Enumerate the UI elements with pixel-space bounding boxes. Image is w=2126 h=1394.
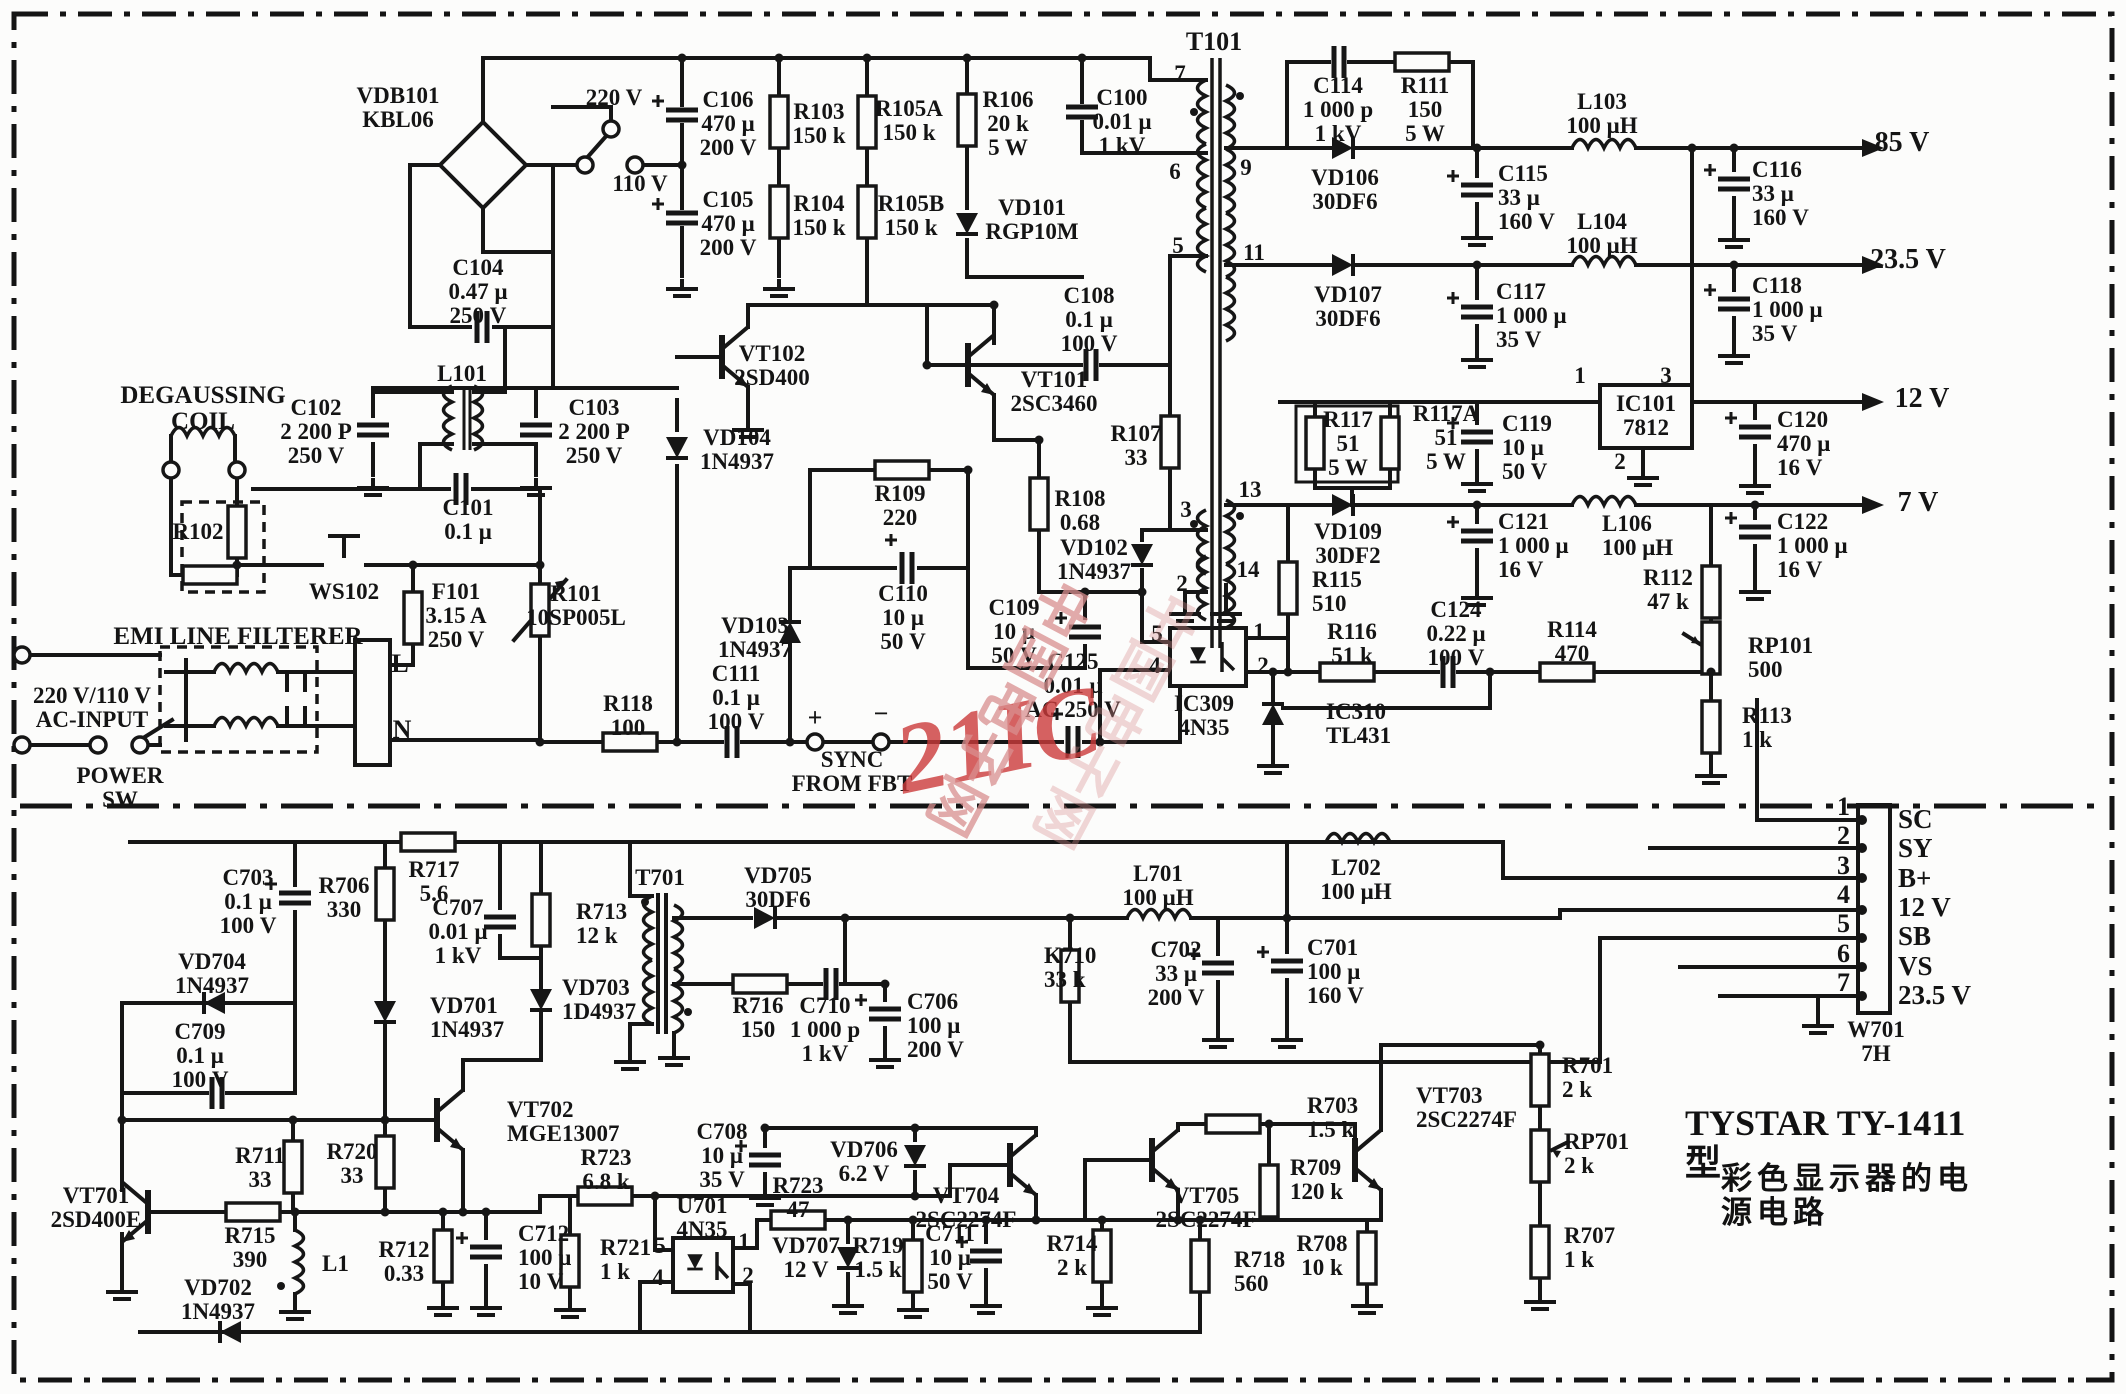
connector-pin-label: VS [1898,953,1933,980]
component-label: 3 [1180,498,1192,522]
component-label: C120 470 μ 16 V [1777,408,1830,480]
component-label: R720 33 [326,1140,377,1188]
component-label: 1 [1253,620,1265,644]
component-label: 220 V/110 V AC-INPUT [33,684,151,732]
component-label: T101 [1186,28,1242,55]
component-label: 1 [738,1230,750,1254]
component-label: R117A 51 5 W [1413,402,1479,474]
component-label: VT703 2SC2274F [1416,1084,1517,1132]
component-label: C711 10 μ 50 V [925,1222,975,1294]
component-label: C701 100 μ 160 V [1307,936,1364,1008]
component-label: F101 3.15 A 250 V [425,580,486,652]
component-label: T701 [635,866,685,890]
component-label: 5 [654,1234,666,1258]
schematic-subtitle: 彩色显示器的电源电路 [1721,1162,1991,1230]
component-label: C122 1 000 μ 16 V [1777,510,1848,582]
connector-pin-label: SC [1898,806,1933,833]
connector-pin-number: 5 [1837,911,1850,937]
component-label: 23.5 V [1870,245,1946,274]
component-label: R115 510 [1312,568,1362,616]
component-label: L104 100 μH [1566,210,1637,258]
component-label: C712 100 μ 10 V [518,1222,571,1294]
component-label: C702 33 μ 200 V [1148,938,1205,1010]
component-label: C708 10 μ 35 V [696,1120,747,1192]
component-label: C119 10 μ 50 V [1502,412,1552,484]
component-label: L [391,650,408,677]
component-label: R116 51 k [1327,620,1377,668]
component-label: R723 6.8 k [580,1146,631,1194]
component-label: 220 V [586,86,642,110]
vt703-symbol [1355,1130,1381,1190]
component-label: IC310 TL431 [1326,700,1391,748]
component-label: C116 33 μ 160 V [1752,158,1809,230]
component-label: R107 33 [1110,422,1161,470]
component-label: R701 2 k [1562,1054,1613,1102]
component-label: R723 47 [772,1174,823,1222]
component-label: L101 [437,362,487,386]
component-label: L701 100 μH [1122,862,1193,910]
component-label: C106 470 μ 200 V [700,88,757,160]
component-label: R712 0.33 [378,1238,429,1286]
component-label: C102 2 200 P 250 V [280,396,352,468]
component-label: 14 [1237,558,1260,582]
component-label: R707 1 k [1564,1224,1615,1272]
component-label: C115 33 μ 160 V [1498,162,1555,234]
component-label: VD101 RGP10M [985,196,1078,244]
component-label: C101 0.1 μ [442,496,493,544]
t101-core [1212,58,1220,648]
component-label: L1 [322,1252,349,1276]
component-label: 2 [742,1264,754,1288]
component-label: VD701 1N4937 [430,994,504,1042]
component-label: C121 1 000 μ 16 V [1498,510,1569,582]
component-label: R109 220 [874,482,925,530]
component-label: R102 [172,520,223,544]
component-label: VT101 2SC3460 [1011,368,1098,416]
component-label: VD104 1N4937 [700,426,774,474]
component-label: C706 100 μ 200 V [907,990,964,1062]
component-label: 12 V [1895,384,1950,413]
component-label: VD106 30DF6 [1311,166,1379,214]
component-label: R708 10 k [1296,1232,1347,1280]
component-label: 11 [1243,241,1265,265]
component-label: 1 [1574,364,1586,388]
component-label: R108 0.68 [1054,487,1105,535]
line-connector-box [355,640,390,765]
component-label: 5 [1151,622,1163,646]
component-label: VT701 2SD400E [51,1184,142,1232]
component-label: 7 V [1898,488,1939,517]
component-label: VD102 1N4937 [1057,536,1131,584]
component-label: R706 330 [318,874,369,922]
component-label: WS102 [309,580,379,604]
schematic-page: VDB101 KBL06220 V110 VC106 470 μ 200 VR1… [0,0,2126,1394]
component-label: R709 120 k [1290,1156,1343,1204]
component-label: R113 1 k [1742,704,1792,752]
component-label: R112 47 k [1643,566,1693,614]
component-label: VD702 1N4937 [181,1276,255,1324]
component-label: RP701 2 k [1564,1130,1629,1178]
component-label: RP101 500 [1748,634,1813,682]
connector-pin-label: 12 V [1898,894,1951,921]
component-label: C110 10 μ 50 V [878,582,928,654]
component-label: 4 [1149,654,1161,678]
component-label: R111 150 5 W [1401,74,1450,146]
component-label: C108 0.1 μ 100 V [1061,284,1118,356]
component-label: R714 2 k [1046,1232,1097,1280]
component-label: R117 51 5 W [1323,408,1373,480]
component-label: C117 1 000 μ 35 V [1496,280,1567,352]
component-label: C114 1 000 p 1 kV [1303,74,1373,146]
component-label: R711 33 [235,1144,285,1192]
connector-pin-number: 2 [1837,823,1850,849]
component-label: R718 560 [1234,1248,1285,1296]
component-label: 9 [1240,156,1252,180]
component-label: 7 [1174,62,1186,86]
component-label: R715 390 [224,1224,275,1272]
component-label: C710 1 000 p 1 kV [790,994,860,1066]
component-label: R118 100 [603,692,653,740]
component-label: 4 [652,1266,664,1290]
component-label: C105 470 μ 200 V [700,188,757,260]
component-label: C124 0.22 μ 100 V [1426,598,1485,670]
component-label: N [393,716,412,743]
component-label: VD703 1D4937 [562,976,636,1024]
component-label: VD705 30DF6 [744,864,812,912]
component-label: C103 2 200 P 250 V [558,396,630,468]
component-label: VDB101 KBL06 [356,84,439,132]
component-label: VT102 2SD400 [734,342,809,390]
component-label: L106 100 μH [1602,512,1673,560]
component-label: R114 470 [1547,618,1597,666]
vt702-symbol [437,1090,463,1150]
component-label: DEGAUSSING COIL [120,383,285,435]
connector-pin-label: 23.5 V [1898,982,1971,1009]
component-label: 13 [1239,478,1262,502]
component-label: − [874,700,889,727]
component-label: VD707 12 V [772,1234,840,1282]
component-label: EMI LINE FILTERER [113,624,362,650]
component-label: R105A 150 k [875,97,943,145]
component-label: R106 20 k 5 W [982,88,1033,160]
component-label: C125 0.01 μ AC 250 V [1025,650,1120,722]
component-label: R716 150 [732,994,783,1042]
component-label: VD107 30DF6 [1314,283,1382,331]
component-label: 2 [1176,572,1188,596]
component-label: C707 0.01 μ 1 kV [428,896,487,968]
component-label: 6 [1169,160,1181,184]
component-label: C703 0.1 μ 100 V [220,866,277,938]
component-label: R104 150 k [792,192,845,240]
component-label: 85 V [1875,128,1930,157]
component-label: VT705 2SC2274F [1156,1184,1257,1232]
component-label: R721 1 k [600,1236,651,1284]
connector-pin-label: SY [1898,835,1933,862]
component-label: VD109 30DF2 [1314,520,1382,568]
component-label: VD704 1N4937 [175,950,249,998]
component-label: R713 12 k [576,900,627,948]
component-label: + [808,704,823,731]
connector-pin-number: 4 [1837,882,1850,908]
ic309-box [1170,628,1246,686]
component-label: VT702 MGE13007 [507,1098,619,1146]
component-label: 2 [1614,450,1626,474]
component-label: 5 [1172,234,1184,258]
component-label: R719 1.5 k [852,1234,903,1282]
component-label: R105B 150 k [878,192,944,240]
component-label: VD103 1N4937 [718,614,792,662]
connector-pin-number: 7 [1837,970,1850,996]
u701-box [673,1238,733,1292]
component-label: C100 0.01 μ 1 kV [1092,86,1151,158]
component-label: C104 0.47 μ 250 V [448,256,507,328]
component-label: C709 0.1 μ 100 V [172,1020,229,1092]
component-label: L702 100 μH [1320,856,1391,904]
component-label: VD706 6.2 V [830,1138,898,1186]
component-label: 110 V [612,172,667,196]
connector-pin-label: B+ [1898,865,1931,892]
connector-pin-label: SB [1898,923,1931,950]
component-label: POWER SW [77,764,164,812]
vt705-symbol [1152,1130,1178,1190]
component-label: C111 0.1 μ 100 V [708,662,765,734]
l101-core [464,390,470,450]
connector-pin-number: 1 [1837,794,1850,820]
connector-pin-number: 3 [1837,853,1850,879]
component-label: L103 100 μH [1566,90,1637,138]
connector-pin-number: 6 [1837,941,1850,967]
component-label: W701 7H [1847,1018,1905,1066]
component-label: IC309 4N35 [1174,692,1234,740]
component-label: U701 4N35 [676,1194,727,1242]
component-label: IC101 7812 [1616,392,1676,440]
component-label: 3 [1660,364,1672,388]
component-label: R103 150 k [792,100,845,148]
component-label: K710 33 k [1044,944,1096,992]
component-label: SYNC FROM FBT [792,748,913,796]
component-label: 2 [1257,654,1269,678]
component-label: C118 1 000 μ 35 V [1752,274,1823,346]
component-label: R101 10SP005L [526,582,626,630]
component-label: R703 1.5 k [1307,1094,1358,1142]
